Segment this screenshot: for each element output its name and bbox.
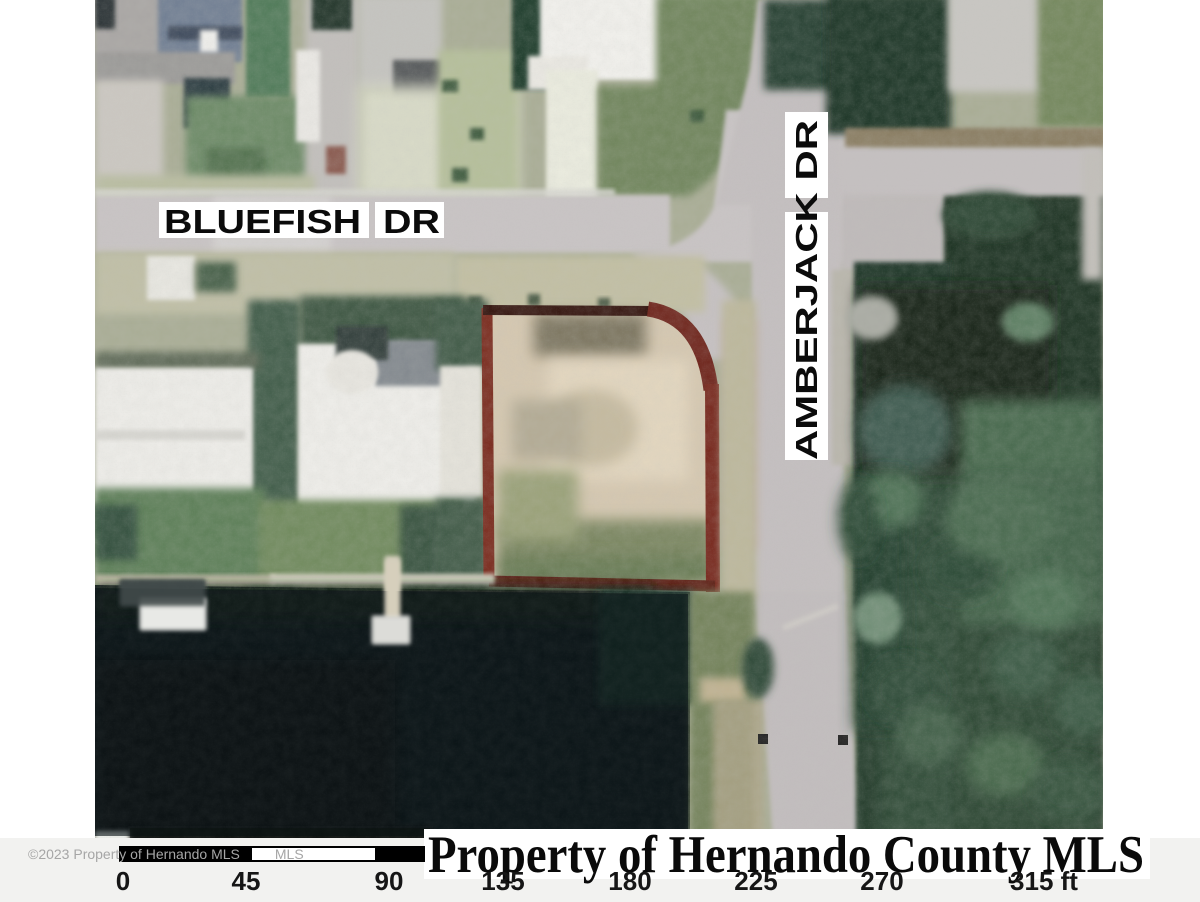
svg-text:AMBERJACK DR: AMBERJACK DR: [789, 120, 824, 460]
svg-text:BLUEFISH DR: BLUEFISH DR: [164, 203, 440, 240]
svg-text:225: 225: [734, 866, 777, 896]
svg-text:135: 135: [481, 866, 524, 896]
svg-text:45: 45: [232, 866, 261, 896]
svg-text:©2023 Property of Hernando MLS: ©2023 Property of Hernando MLS MLS: [28, 846, 304, 862]
svg-text:0: 0: [116, 866, 130, 896]
svg-text:315 ft: 315 ft: [1010, 866, 1078, 896]
svg-text:90: 90: [375, 866, 404, 896]
svg-text:270: 270: [860, 866, 903, 896]
svg-text:180: 180: [608, 866, 651, 896]
